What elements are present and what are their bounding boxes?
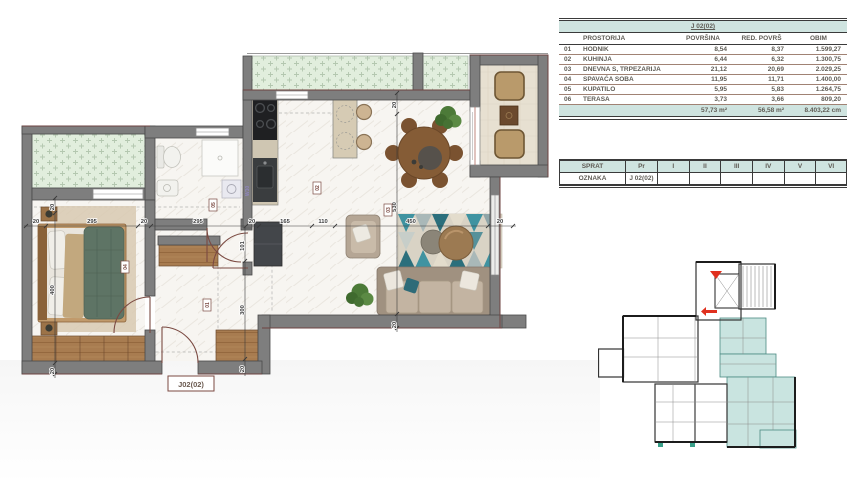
col-header-obim: OBIM — [790, 35, 847, 42]
wall-terrace-east — [538, 55, 548, 177]
oznaka-empty — [784, 173, 816, 185]
oznaka-label: OZNAKA — [559, 173, 625, 185]
col-header-red-povrs: RED. POVRŠ — [733, 35, 790, 42]
sofa-pillow — [383, 270, 404, 291]
col-header-povrsina: POVRŠINA — [673, 35, 733, 42]
dim-label: 450 — [406, 219, 416, 225]
svg-text:03: 03 — [386, 207, 392, 213]
total-area: 57,73 m² — [673, 107, 733, 114]
window-bathroom — [196, 128, 229, 136]
dim-label: 101 — [240, 240, 246, 250]
terrace-chair — [495, 130, 524, 158]
room-label-02: 02 — [313, 182, 321, 194]
floor-col-iii: III — [720, 161, 752, 173]
washer-size-label: W30 — [245, 186, 251, 197]
kitchen-sink — [257, 166, 273, 188]
floor-table: SPRAT Pr I II III IV V VI OZNAKA J 02(02… — [559, 159, 847, 188]
wall-left — [22, 126, 32, 374]
floor-col-v: V — [784, 161, 816, 173]
room-reduced-area: 3,66 — [733, 96, 790, 103]
svg-text:02: 02 — [315, 185, 321, 191]
balcony-mark — [690, 443, 695, 447]
sofa-pillow — [459, 271, 479, 291]
table-row: 03 DNEVNA S, TRPEZARIJA 21,12 20,69 2.02… — [559, 65, 847, 75]
highlighted-unit — [720, 318, 796, 448]
wall-corner-block — [500, 315, 526, 328]
dim-label: 165 — [280, 219, 290, 225]
wall-terrace-north — [470, 55, 548, 65]
unit-label: J02(02) — [168, 376, 214, 391]
hall-cabinet — [216, 330, 258, 361]
room-name: KUHINJA — [581, 56, 673, 63]
svg-text:J02(02): J02(02) — [178, 380, 204, 389]
room-label-03: 03 — [384, 204, 392, 216]
room-perimeter: 1.264,75 — [790, 86, 847, 93]
table-dish — [419, 165, 423, 169]
window-bedroom — [93, 189, 143, 199]
oznaka-empty — [752, 173, 784, 185]
floor-col-vi: VI — [815, 161, 847, 173]
wall-living-south — [262, 315, 502, 328]
total-reduced-area: 56,58 m² — [733, 107, 790, 114]
window-kitchen — [276, 91, 308, 99]
floor-col-iv: IV — [752, 161, 784, 173]
floor-col-ii: II — [689, 161, 721, 173]
room-name: HODNIK — [581, 46, 673, 53]
dim-label: 20 — [240, 366, 246, 372]
faucet — [263, 161, 266, 164]
shower — [202, 140, 238, 176]
floor-plan-drawing: 20 295 20 295 20 165 110 450 20 20 400 2… — [0, 0, 560, 460]
room-name: TERASA — [581, 96, 673, 103]
washing-machine — [222, 180, 241, 198]
table-row: 05 KUPATILO 5,95 5,83 1.264,75 — [559, 85, 847, 95]
left-balcony-hatch — [32, 134, 145, 188]
room-label-01: 01 — [203, 299, 211, 311]
dim-label: 20 — [249, 219, 255, 225]
hall-closet — [159, 245, 218, 266]
floor-col-pr: Pr — [625, 161, 657, 173]
dim-label: 20 — [141, 219, 147, 225]
bar-counter — [333, 97, 357, 158]
table-row: 04 SPAVAĆA SOBA 11,95 11,71 1.400,00 — [559, 75, 847, 85]
col-header-prostorija: PROSTORIJA — [581, 35, 673, 42]
wall-kitchen-west — [243, 56, 252, 228]
room-number: 04 — [559, 76, 581, 83]
lamp — [45, 210, 52, 217]
room-area: 8,54 — [673, 46, 733, 53]
terrace-chair — [495, 72, 524, 100]
bed-throw — [63, 234, 87, 319]
dim-label: 295 — [87, 219, 97, 225]
table-row: 02 KUHINJA 6,44 6,32 1.300,75 — [559, 55, 847, 65]
dim-label: 530 — [392, 202, 398, 212]
room-number: 03 — [559, 66, 581, 73]
room-number: 05 — [559, 86, 581, 93]
window-living-east — [491, 195, 499, 275]
oznaka-empty — [720, 173, 752, 185]
bed-pillow — [48, 230, 68, 269]
wall-bedroom-hall — [145, 200, 155, 296]
top-balcony-hatch — [247, 56, 468, 90]
stair-hatch — [743, 266, 771, 307]
room-name: SPAVAĆA SOBA — [581, 76, 673, 83]
svg-text:05: 05 — [211, 202, 217, 208]
dim-label: 400 — [50, 285, 56, 295]
terrace-table — [500, 106, 518, 125]
table-dish — [412, 160, 417, 165]
floor-col-i: I — [657, 161, 689, 173]
bedroom-furniture — [32, 206, 151, 362]
bar-stool — [357, 105, 372, 120]
room-perimeter: 809,20 — [790, 96, 847, 103]
dim-label: 295 — [193, 219, 203, 225]
room-perimeter: 1.400,00 — [790, 76, 847, 83]
room-perimeter: 1.599,27 — [790, 46, 847, 53]
dim-label: 20 — [50, 204, 56, 210]
balcony-mark — [658, 443, 663, 447]
room-area: 6,44 — [673, 56, 733, 63]
dim-label: 20 — [50, 368, 56, 374]
room-area: 3,73 — [673, 96, 733, 103]
toilet-bowl — [164, 147, 181, 168]
bar-stool — [357, 135, 372, 150]
room-area: 11,95 — [673, 76, 733, 83]
floor-table-data-row: OZNAKA J 02(02) — [559, 173, 847, 185]
armchair — [346, 215, 380, 258]
svg-text:01: 01 — [205, 302, 211, 308]
dim-label: 110 — [318, 219, 327, 225]
sofa — [377, 267, 492, 315]
table-row: 01 HODNIK 8,54 8,37 1.599,27 — [559, 45, 847, 55]
area-table-title: J 02(02) — [691, 23, 715, 30]
table-row: 06 TERASA 3,73 3,66 809,20 — [559, 95, 847, 105]
room-label-05: 05 — [209, 199, 217, 211]
oznaka-empty — [815, 173, 847, 185]
room-perimeter: 2.029,25 — [790, 66, 847, 73]
floor-col-sprat: SPRAT — [559, 161, 625, 173]
room-number: 02 — [559, 56, 581, 63]
area-table-title-row: J 02(02) — [559, 21, 847, 33]
page: 20 295 20 295 20 165 110 450 20 20 400 2… — [0, 0, 855, 483]
room-perimeter: 1.300,75 — [790, 56, 847, 63]
wall-south-west — [22, 361, 162, 374]
room-number: 06 — [559, 96, 581, 103]
room-reduced-area: 20,69 — [733, 66, 790, 73]
floor-table-header-row: SPRAT Pr I II III IV V VI — [559, 161, 847, 173]
oznaka-value: J 02(02) — [625, 173, 657, 185]
sink — [157, 180, 178, 196]
svg-text:04: 04 — [123, 264, 129, 270]
oznaka-empty — [689, 173, 721, 185]
dim-label: 20 — [497, 219, 503, 225]
room-reduced-area: 6,32 — [733, 56, 790, 63]
room-reduced-area: 5,83 — [733, 86, 790, 93]
wardrobe — [32, 336, 148, 362]
dim-label: 300 — [240, 305, 246, 315]
room-area: 21,12 — [673, 66, 733, 73]
room-name: KUPATILO — [581, 86, 673, 93]
sliding-door-terrace — [470, 107, 480, 165]
room-reduced-area: 8,37 — [733, 46, 790, 53]
stair-core — [715, 266, 771, 308]
wall-balcony-divider — [413, 53, 423, 90]
room-area: 5,95 — [673, 86, 733, 93]
room-name: DNEVNA S, TRPEZARIJA — [581, 66, 673, 73]
wall-terrace-south — [470, 165, 548, 177]
totals-row: 57,73 m² 56,58 m² 8.403,22 cm — [559, 105, 847, 116]
room-number: 01 — [559, 46, 581, 53]
dim-label: 20 — [392, 102, 398, 108]
dim-label: 20 — [392, 322, 398, 328]
key-plan — [598, 252, 843, 480]
sofa-cushion — [419, 281, 451, 313]
lamp — [45, 324, 52, 331]
area-table-header-row: PROSTORIJA POVRŠINA RED. POVRŠ OBIM — [559, 33, 847, 45]
room-reduced-area: 11,71 — [733, 76, 790, 83]
oznaka-empty — [657, 173, 689, 185]
wall-balcony-top — [22, 126, 150, 134]
wall-south-entry — [198, 361, 262, 374]
area-table: J 02(02) PROSTORIJA POVRŠINA RED. POVRŠ … — [559, 18, 847, 120]
toilet-tank — [157, 146, 164, 168]
room-label-04: 04 — [121, 261, 129, 273]
wall-terrace-west-upper — [470, 55, 480, 111]
dim-label: 20 — [33, 219, 39, 225]
bed-headboard — [38, 226, 47, 320]
total-perimeter: 8.403,22 cm — [790, 107, 847, 114]
